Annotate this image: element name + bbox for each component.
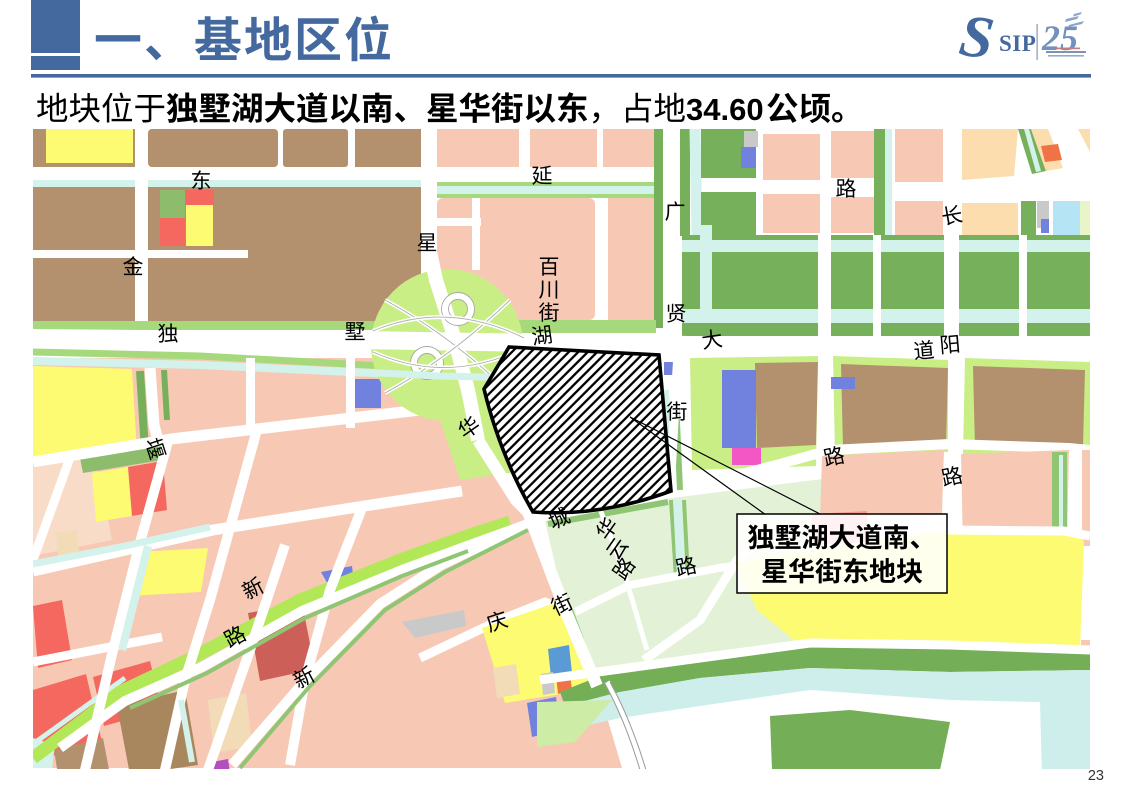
svg-text:34.60: 34.60	[686, 92, 764, 127]
svg-text:S: S	[956, 2, 998, 72]
svg-text:23: 23	[1088, 768, 1104, 784]
svg-text:SIP: SIP	[999, 31, 1036, 56]
